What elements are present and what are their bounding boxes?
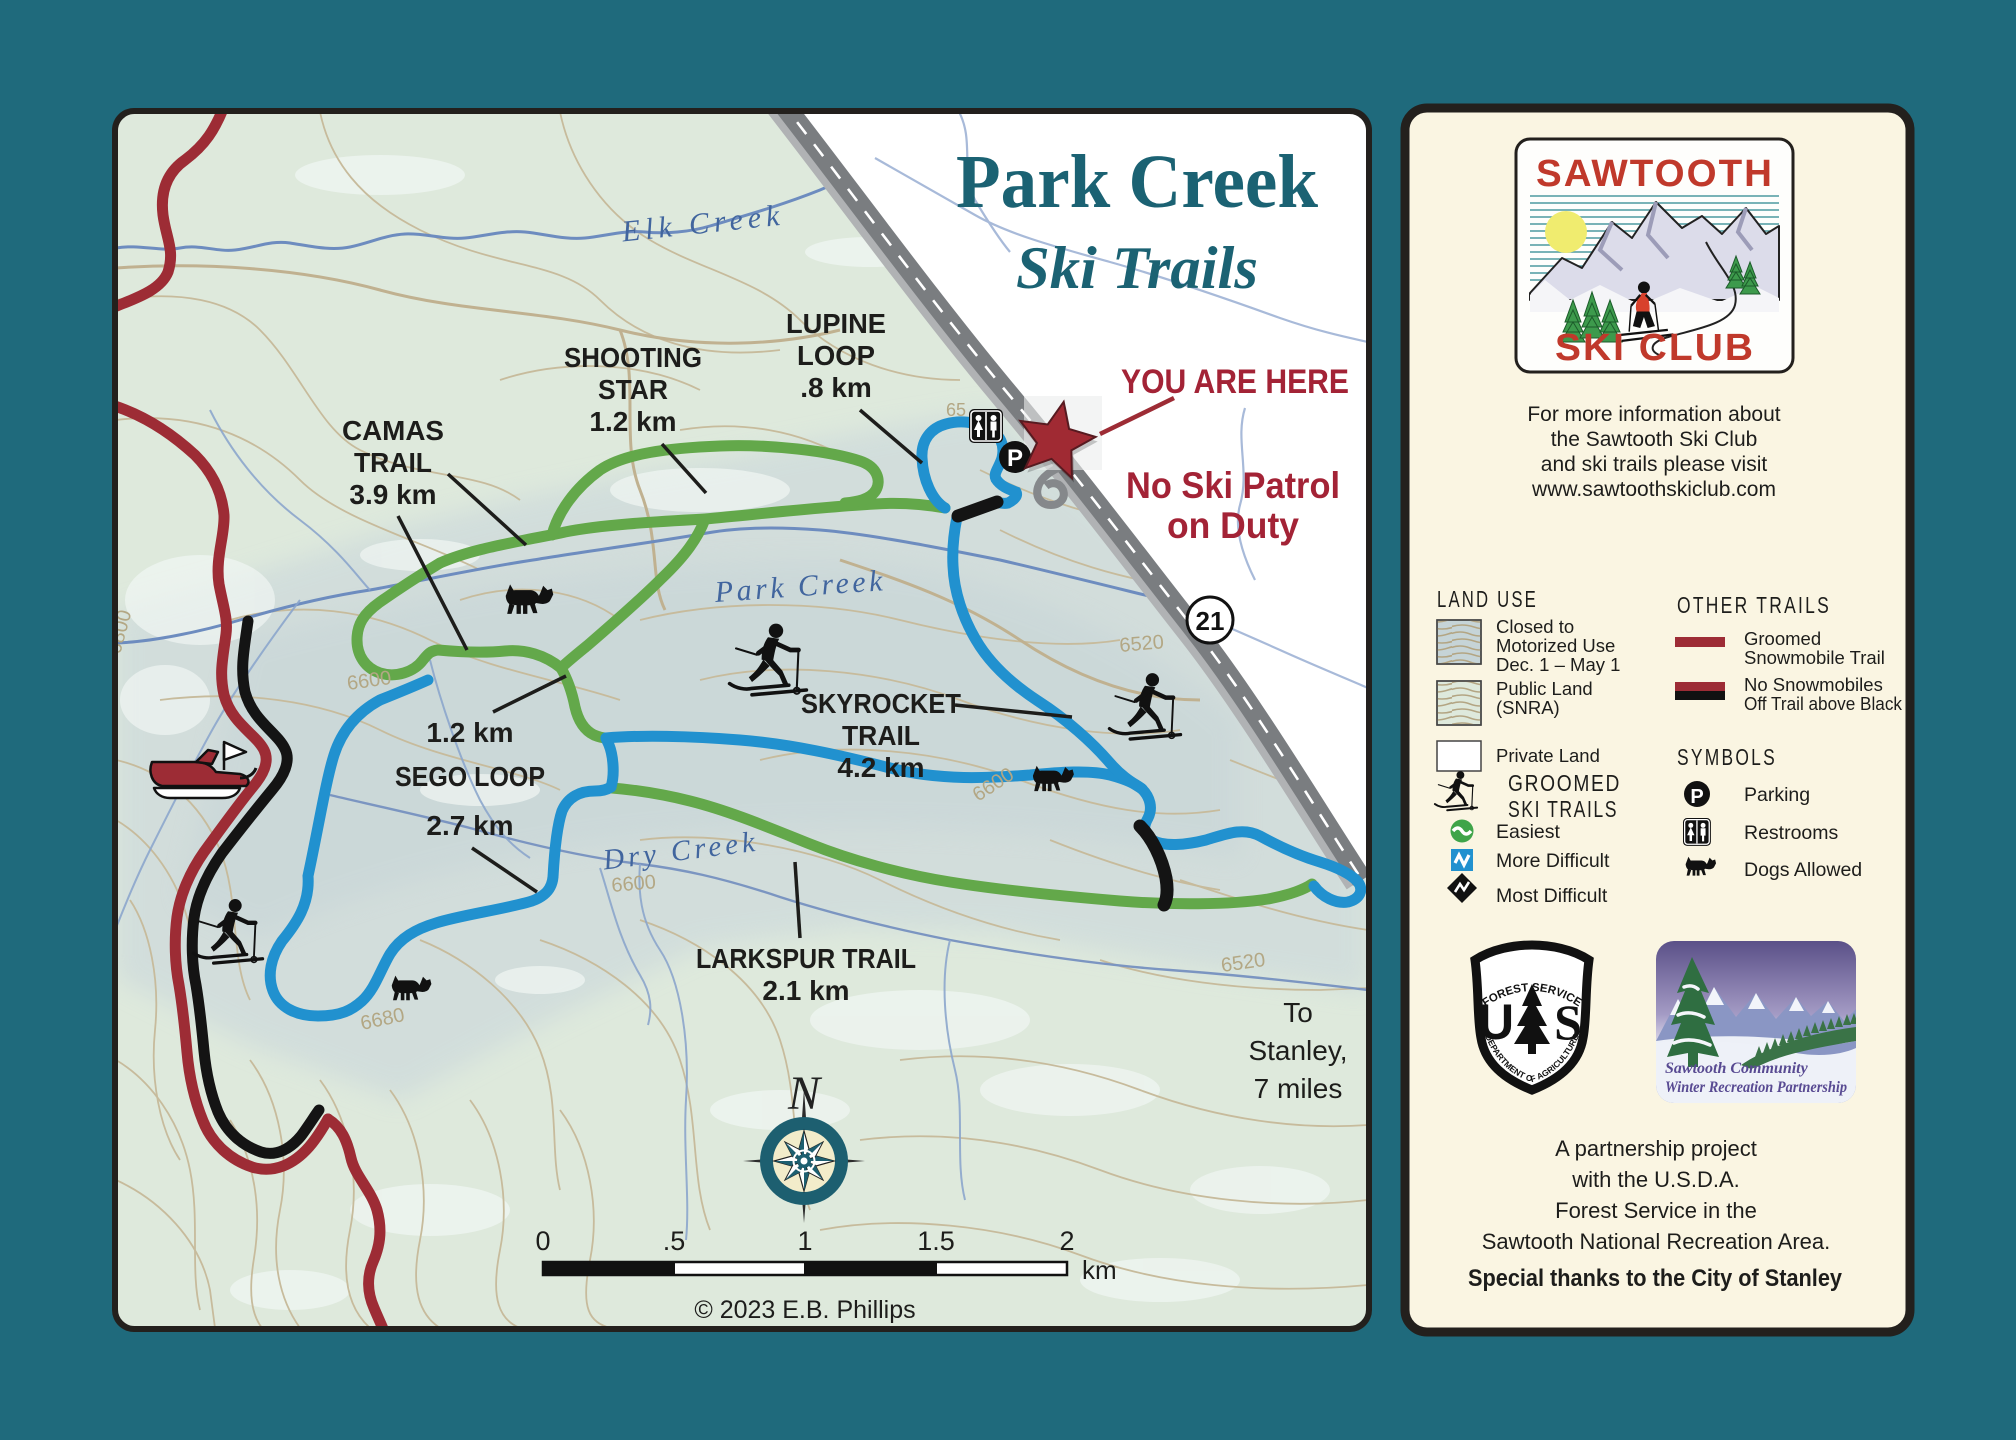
- svg-text:S: S: [1554, 994, 1582, 1050]
- svg-text:P: P: [1007, 445, 1023, 472]
- svg-text:Dec. 1 – May 1: Dec. 1 – May 1: [1496, 654, 1620, 675]
- svg-text:TRAIL: TRAIL: [842, 720, 920, 751]
- svg-text:.8 km: .8 km: [800, 372, 872, 403]
- svg-text:Public Land: Public Land: [1496, 678, 1593, 699]
- svg-text:2: 2: [1059, 1226, 1074, 1256]
- svg-text:(SNRA): (SNRA): [1496, 697, 1560, 718]
- svg-text:Motorized Use: Motorized Use: [1496, 635, 1615, 656]
- svg-text:on Duty: on Duty: [1167, 505, 1299, 546]
- svg-text:SKI CLUB: SKI CLUB: [1555, 327, 1755, 369]
- svg-text:CAMAS: CAMAS: [342, 415, 444, 446]
- svg-text:and ski trails please visit: and ski trails please visit: [1541, 453, 1768, 476]
- svg-text:Ski Trails: Ski Trails: [1016, 235, 1258, 301]
- svg-text:OTHER TRAILS: OTHER TRAILS: [1677, 592, 1831, 618]
- svg-text:SHOOTING: SHOOTING: [564, 342, 702, 373]
- svg-text:SAWTOOTH: SAWTOOTH: [1536, 153, 1774, 195]
- svg-text:To: To: [1283, 997, 1313, 1028]
- svg-text:Park Creek: Park Creek: [956, 140, 1319, 224]
- svg-text:SYMBOLS: SYMBOLS: [1677, 744, 1777, 770]
- svg-text:Stanley,: Stanley,: [1248, 1035, 1347, 1066]
- svg-text:Off Trail above Black: Off Trail above Black: [1744, 693, 1903, 714]
- svg-text:Most Difficult: Most Difficult: [1496, 885, 1608, 907]
- svg-text:65: 65: [946, 400, 966, 420]
- svg-text:U: U: [1478, 994, 1514, 1050]
- svg-text:.5: .5: [663, 1226, 686, 1256]
- svg-text:6600: 6600: [611, 871, 657, 897]
- svg-text:For more information about: For more information about: [1527, 403, 1780, 426]
- svg-text:6520: 6520: [1119, 631, 1165, 657]
- svg-text:Winter Recreation Partnership: Winter Recreation Partnership: [1665, 1079, 1847, 1096]
- svg-text:Snowmobile Trail: Snowmobile Trail: [1744, 647, 1885, 668]
- svg-text:4.2 km: 4.2 km: [837, 752, 924, 783]
- svg-text:Dogs Allowed: Dogs Allowed: [1744, 859, 1862, 881]
- svg-text:TRAIL: TRAIL: [354, 447, 432, 478]
- svg-text:GROOMED: GROOMED: [1508, 770, 1621, 796]
- svg-text:2.7 km: 2.7 km: [426, 810, 513, 841]
- svg-text:STAR: STAR: [598, 374, 668, 405]
- svg-text:YOU ARE HERE: YOU ARE HERE: [1121, 363, 1349, 401]
- svg-text:Parking: Parking: [1744, 784, 1810, 806]
- svg-text:Groomed: Groomed: [1744, 628, 1821, 649]
- svg-text:1.2 km: 1.2 km: [426, 717, 513, 748]
- svg-text:LUPINE: LUPINE: [786, 308, 886, 339]
- svg-text:the Sawtooth Ski Club: the Sawtooth Ski Club: [1551, 428, 1758, 451]
- svg-text:Restrooms: Restrooms: [1744, 822, 1839, 844]
- svg-text:LAND USE: LAND USE: [1437, 586, 1538, 612]
- svg-text:2.1 km: 2.1 km: [762, 975, 849, 1006]
- svg-text:Sawtooth Community: Sawtooth Community: [1665, 1060, 1809, 1077]
- svg-text:No Snowmobiles: No Snowmobiles: [1744, 674, 1883, 695]
- svg-text:with the U.S.D.A.: with the U.S.D.A.: [1571, 1167, 1740, 1192]
- svg-text:Sawtooth National Recreation A: Sawtooth National Recreation Area.: [1482, 1229, 1831, 1254]
- svg-text:3.9 km: 3.9 km: [349, 479, 436, 510]
- svg-text:21: 21: [1196, 606, 1225, 636]
- svg-text:Closed to: Closed to: [1496, 616, 1574, 637]
- svg-text:P: P: [1690, 786, 1703, 808]
- svg-text:LOOP: LOOP: [797, 340, 875, 371]
- svg-text:No Ski Patrol: No Ski Patrol: [1126, 465, 1340, 506]
- svg-text:0: 0: [535, 1226, 550, 1256]
- svg-text:Private Land: Private Land: [1496, 745, 1600, 766]
- svg-text:SKI TRAILS: SKI TRAILS: [1508, 796, 1618, 822]
- svg-text:Easiest: Easiest: [1496, 821, 1561, 843]
- svg-text:© 2023 E.B. Phillips: © 2023 E.B. Phillips: [694, 1296, 915, 1324]
- svg-text:LARKSPUR TRAIL: LARKSPUR TRAIL: [696, 943, 916, 974]
- svg-text:SEGO LOOP: SEGO LOOP: [395, 761, 545, 792]
- svg-text:A partnership project: A partnership project: [1555, 1136, 1757, 1161]
- svg-text:SKYROCKET: SKYROCKET: [801, 688, 961, 719]
- svg-text:km: km: [1082, 1255, 1117, 1285]
- svg-text:1.5: 1.5: [917, 1226, 955, 1256]
- svg-text:1.2 km: 1.2 km: [589, 406, 676, 437]
- svg-text:More Difficult: More Difficult: [1496, 850, 1610, 872]
- svg-text:1: 1: [797, 1226, 812, 1256]
- svg-text:Forest Service in the: Forest Service in the: [1555, 1198, 1757, 1223]
- svg-text:7 miles: 7 miles: [1254, 1073, 1343, 1104]
- svg-text:www.sawtoothskiclub.com: www.sawtoothskiclub.com: [1531, 478, 1776, 501]
- svg-text:N: N: [787, 1067, 823, 1120]
- svg-text:Special thanks to the City of: Special thanks to the City of Stanley: [1468, 1265, 1843, 1292]
